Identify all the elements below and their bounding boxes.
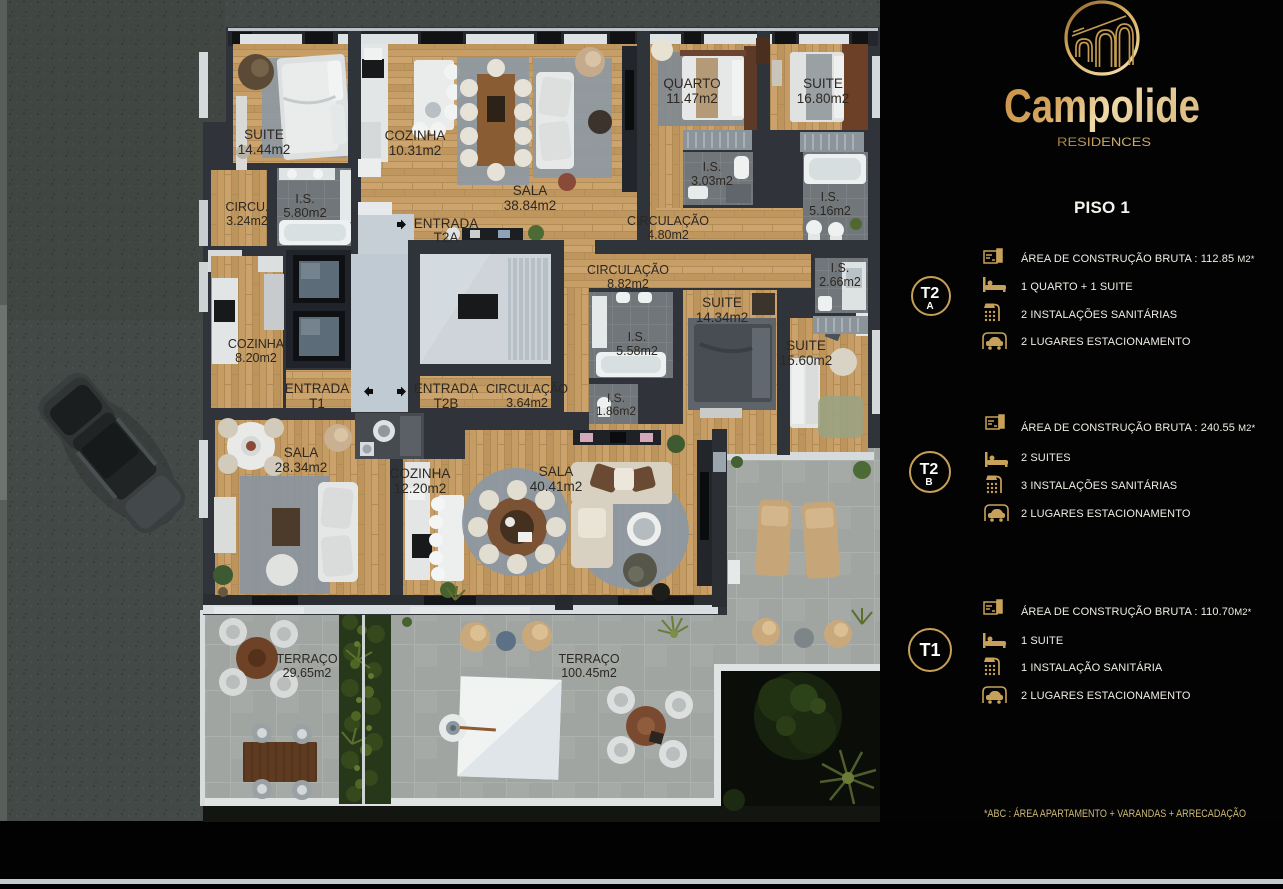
svg-text:T2B: T2B (434, 396, 459, 411)
svg-text:T1: T1 (309, 396, 325, 411)
svg-text:ENTRADA: ENTRADA (414, 381, 479, 396)
svg-text:14.34m2: 14.34m2 (696, 310, 749, 325)
svg-text:RESIDENCES: RESIDENCES (1057, 137, 1151, 149)
svg-text:11.47m2: 11.47m2 (666, 91, 718, 106)
svg-text:SUITE: SUITE (702, 295, 742, 310)
svg-text:2.66m2: 2.66m2 (819, 275, 861, 289)
svg-text:TERRAÇO: TERRAÇO (558, 652, 619, 666)
svg-text:SALA: SALA (284, 445, 319, 460)
svg-text:TERRAÇO: TERRAÇO (276, 652, 337, 666)
svg-text:2 LUGARES ESTACIONAMENTO: 2 LUGARES ESTACIONAMENTO (1021, 690, 1191, 702)
svg-text:T2: T2 (920, 461, 939, 478)
svg-text:PISO 1: PISO 1 (1074, 198, 1130, 217)
svg-text:4.80m2: 4.80m2 (647, 228, 689, 242)
svg-text:3.03m2: 3.03m2 (691, 174, 733, 188)
svg-text:ENTRADA: ENTRADA (414, 216, 479, 231)
svg-text:38.84m2: 38.84m2 (504, 198, 557, 213)
svg-text:1 INSTALAÇÃO SANITÁRIA: 1 INSTALAÇÃO SANITÁRIA (1021, 661, 1163, 674)
svg-text:A: A (926, 301, 933, 312)
svg-text:3.24m2: 3.24m2 (226, 214, 268, 228)
svg-text:3 INSTALAÇÕES SANITÁRIAS: 3 INSTALAÇÕES SANITÁRIAS (1021, 479, 1177, 492)
svg-text:I.S.: I.S. (831, 261, 850, 275)
svg-text:COZINHA: COZINHA (228, 337, 285, 351)
svg-text:CIRCULAÇÃO: CIRCULAÇÃO (627, 214, 709, 228)
svg-text:ENTRADA: ENTRADA (285, 381, 350, 396)
svg-text:10.31m2: 10.31m2 (389, 143, 442, 158)
svg-text:Campolide: Campolide (1004, 79, 1200, 132)
svg-text:15.60m2: 15.60m2 (780, 353, 833, 368)
svg-text:28.34m2: 28.34m2 (275, 460, 328, 475)
svg-text:8.20m2: 8.20m2 (235, 351, 277, 365)
svg-text:100.45m2: 100.45m2 (561, 666, 617, 680)
svg-text:5.58m2: 5.58m2 (616, 344, 658, 358)
svg-text:ÁREA DE CONSTRUÇÃO BRUTA : 11: ÁREA DE CONSTRUÇÃO BRUTA : 112.85 M2* (1021, 252, 1255, 265)
svg-text:SUITE: SUITE (244, 127, 284, 142)
svg-text:2 LUGARES ESTACIONAMENTO: 2 LUGARES ESTACIONAMENTO (1021, 508, 1191, 520)
svg-text:1 SUITE: 1 SUITE (1021, 635, 1063, 647)
svg-text:ÁREA DE CONSTRUÇÃO BRUTA : 11: ÁREA DE CONSTRUÇÃO BRUTA : 110.70M2* (1021, 605, 1252, 618)
svg-text:*ABC : ÁREA APARTAMENTO + VAR: *ABC : ÁREA APARTAMENTO + VARANDAS + ARR… (984, 807, 1246, 820)
svg-text:2 LUGARES ESTACIONAMENTO: 2 LUGARES ESTACIONAMENTO (1021, 336, 1191, 348)
svg-text:COZINHA: COZINHA (390, 466, 451, 481)
svg-text:T1: T1 (919, 640, 940, 660)
svg-text:QUARTO: QUARTO (663, 76, 720, 91)
svg-text:SUITE: SUITE (786, 338, 826, 353)
svg-text:I.S.: I.S. (703, 160, 722, 174)
svg-text:COZINHA: COZINHA (385, 128, 446, 143)
svg-text:2 SUITES: 2 SUITES (1021, 452, 1071, 464)
svg-text:8.82m2: 8.82m2 (607, 277, 649, 291)
svg-text:I.S.: I.S. (821, 190, 840, 204)
svg-text:29.65m2: 29.65m2 (283, 666, 332, 680)
svg-text:2 INSTALAÇÕES SANITÁRIAS: 2 INSTALAÇÕES SANITÁRIAS (1021, 308, 1177, 321)
svg-text:ÁREA DE CONSTRUÇÃO BRUTA : 24: ÁREA DE CONSTRUÇÃO BRUTA : 240.55 M2* (1021, 421, 1256, 434)
svg-text:CIRCU.: CIRCU. (225, 200, 268, 214)
svg-text:14.44m2: 14.44m2 (238, 142, 291, 157)
svg-text:12.20m2: 12.20m2 (394, 481, 447, 496)
svg-text:SALA: SALA (513, 183, 548, 198)
svg-text:I.S.: I.S. (628, 330, 647, 344)
svg-text:SALA: SALA (539, 464, 574, 479)
svg-text:CIRCULAÇÃO: CIRCULAÇÃO (486, 382, 568, 396)
svg-text:CIRCULAÇÃO: CIRCULAÇÃO (587, 263, 669, 277)
svg-text:5.16m2: 5.16m2 (809, 204, 851, 218)
svg-text:40.41m2: 40.41m2 (530, 479, 583, 494)
svg-text:T2: T2 (921, 285, 940, 302)
svg-text:16.80m2: 16.80m2 (797, 91, 850, 106)
svg-text:I.S.: I.S. (295, 191, 315, 206)
svg-text:I.S.: I.S. (607, 391, 625, 405)
svg-text:3.64m2: 3.64m2 (506, 396, 548, 410)
svg-text:5.80m2: 5.80m2 (283, 205, 326, 220)
svg-text:1 QUARTO + 1 SUITE: 1 QUARTO + 1 SUITE (1021, 281, 1133, 293)
svg-text:SUITE: SUITE (803, 76, 843, 91)
svg-text:B: B (925, 477, 932, 488)
svg-text:1.86m2: 1.86m2 (596, 404, 636, 418)
svg-text:T2A: T2A (434, 230, 459, 245)
